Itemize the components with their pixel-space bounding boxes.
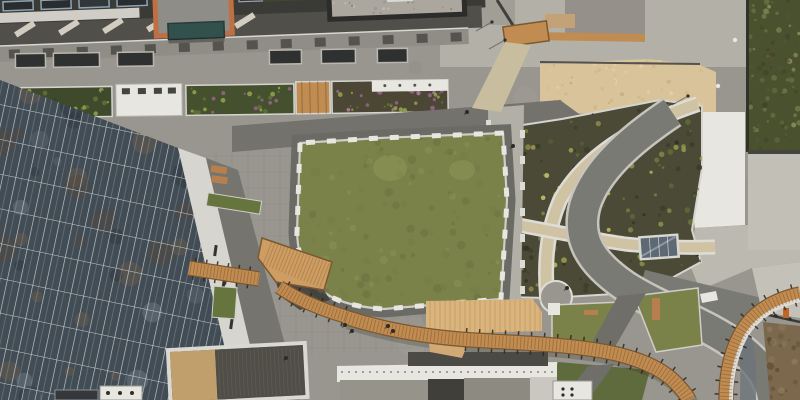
dark-skylight-box [55, 390, 98, 400]
concrete-stain [565, 0, 645, 37]
roof-a [168, 343, 308, 400]
concrete-walk-right [748, 154, 800, 250]
bench [652, 298, 660, 320]
pallet [545, 14, 575, 28]
wood-deck-inset [296, 81, 330, 113]
white-step [548, 303, 560, 315]
grass-strip [212, 286, 237, 319]
roof-divider [748, 150, 800, 154]
aerial-photo [0, 0, 800, 400]
gravel-roof [328, 0, 465, 19]
plywood-deck [426, 299, 542, 334]
teal-canopy [168, 21, 225, 39]
white-bench-slab [372, 80, 448, 92]
central-lawn [294, 131, 509, 312]
orange-pavilion [154, 0, 232, 44]
green-roof-edge [746, 0, 749, 152]
garden-skylight [639, 235, 678, 260]
deck-shadow-strip [408, 352, 548, 366]
bench [584, 310, 598, 315]
aerial-photo-canvas [0, 0, 800, 400]
